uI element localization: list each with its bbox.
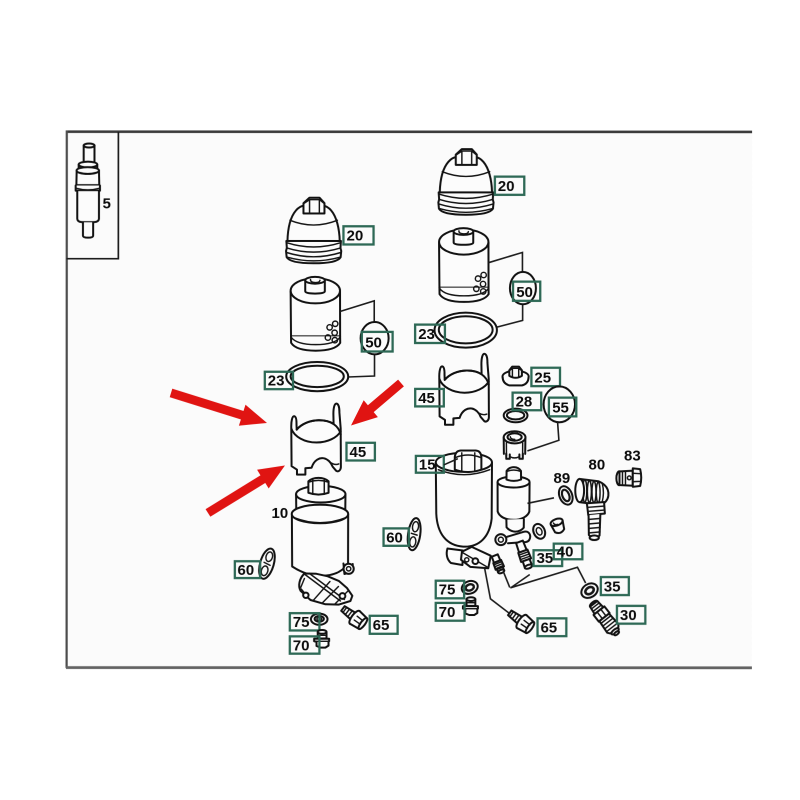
svg-text:28: 28: [516, 394, 533, 411]
svg-text:20: 20: [347, 228, 364, 245]
svg-text:50: 50: [516, 284, 533, 301]
svg-text:10: 10: [271, 505, 288, 522]
svg-text:45: 45: [418, 390, 435, 407]
svg-text:23: 23: [418, 326, 435, 343]
svg-text:50: 50: [365, 334, 382, 351]
svg-text:15: 15: [419, 456, 436, 473]
svg-text:55: 55: [552, 399, 569, 416]
svg-text:60: 60: [237, 562, 254, 579]
svg-text:75: 75: [439, 582, 456, 599]
svg-text:60: 60: [386, 529, 403, 546]
svg-text:23: 23: [268, 373, 285, 390]
svg-text:30: 30: [620, 607, 637, 624]
svg-text:20: 20: [498, 178, 515, 195]
svg-text:80: 80: [588, 457, 605, 474]
svg-text:45: 45: [349, 444, 366, 461]
svg-text:25: 25: [534, 369, 551, 386]
svg-text:65: 65: [541, 620, 558, 637]
svg-text:89: 89: [553, 470, 570, 487]
svg-text:5: 5: [103, 195, 111, 212]
svg-text:83: 83: [624, 448, 641, 465]
svg-text:35: 35: [604, 578, 621, 595]
svg-text:75: 75: [293, 614, 310, 631]
svg-text:65: 65: [373, 617, 390, 634]
svg-text:40: 40: [557, 543, 574, 560]
svg-text:70: 70: [293, 637, 310, 654]
svg-text:35: 35: [537, 550, 554, 567]
svg-text:70: 70: [439, 604, 456, 621]
